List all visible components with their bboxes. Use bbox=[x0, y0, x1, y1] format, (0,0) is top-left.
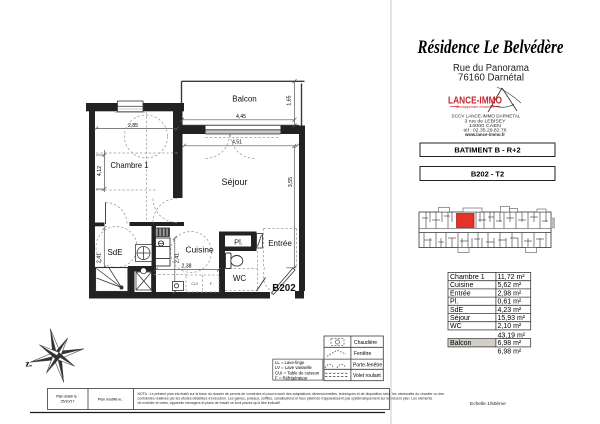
svg-text:Volet roulant: Volet roulant bbox=[353, 373, 381, 379]
svg-text:WC: WC bbox=[233, 274, 247, 283]
svg-text:Chaudière: Chaudière bbox=[354, 340, 377, 346]
svg-text:Chambre 1: Chambre 1 bbox=[111, 161, 149, 170]
svg-text:z.: z. bbox=[26, 360, 33, 370]
svg-text:CUI: CUI bbox=[191, 282, 197, 286]
svg-text:F = Réfrigérateur: F = Réfrigérateur bbox=[275, 375, 308, 380]
svg-text:Balcon: Balcon bbox=[232, 95, 256, 104]
svg-text:Plan établi le :: Plan établi le : bbox=[56, 395, 79, 399]
svg-text:WC: WC bbox=[450, 323, 462, 330]
svg-text:1,65: 1,65 bbox=[287, 95, 293, 105]
svg-text:3,55: 3,55 bbox=[288, 177, 294, 187]
svg-text:2,85: 2,85 bbox=[128, 123, 138, 129]
svg-text:SdE: SdE bbox=[450, 307, 464, 314]
svg-text:Balcon: Balcon bbox=[450, 340, 472, 347]
svg-text:6,98 m²: 6,98 m² bbox=[498, 349, 522, 356]
svg-text:Pl.: Pl. bbox=[450, 299, 458, 306]
svg-text:Pl.: Pl. bbox=[234, 238, 243, 247]
svg-text:4,51: 4,51 bbox=[232, 140, 242, 146]
svg-text:BATIMENT B - R+2: BATIMENT B - R+2 bbox=[454, 145, 520, 154]
svg-text:Résidence Le Belvédère: Résidence Le Belvédère bbox=[417, 37, 564, 58]
svg-text:Séjour: Séjour bbox=[221, 177, 247, 187]
svg-text:2,98 m²: 2,98 m² bbox=[498, 290, 522, 297]
svg-text:NOTA : Le présent plan est éta: NOTA : Le présent plan est établi sur la… bbox=[138, 392, 445, 396]
svg-text:15,93 m²: 15,93 m² bbox=[498, 315, 526, 322]
svg-text:Porte-fenêtre: Porte-fenêtre bbox=[353, 362, 382, 368]
svg-text:6,98 m²: 6,98 m² bbox=[498, 340, 522, 347]
svg-text:Fenêtre: Fenêtre bbox=[354, 351, 371, 357]
svg-text:B202 - T2: B202 - T2 bbox=[471, 169, 504, 178]
svg-text:25/10/17: 25/10/17 bbox=[61, 400, 75, 404]
svg-text:Entrée: Entrée bbox=[268, 239, 292, 248]
svg-text:2,41: 2,41 bbox=[175, 253, 181, 263]
svg-text:de mobilier et cotes, appareil: de mobilier et cotes, appareils ménagers… bbox=[138, 401, 281, 405]
svg-text:Plan modifié le :: Plan modifié le : bbox=[98, 398, 124, 402]
svg-text:Echelle 1/50ème: Echelle 1/50ème bbox=[470, 401, 506, 407]
svg-text:contraintes relatives par les: contraintes relatives par les études dét… bbox=[138, 396, 433, 400]
svg-text:4,12: 4,12 bbox=[97, 166, 103, 176]
svg-text:0,61 m²: 0,61 m² bbox=[498, 299, 522, 306]
svg-text:4,45: 4,45 bbox=[236, 114, 246, 120]
svg-text:2,38: 2,38 bbox=[181, 264, 191, 270]
svg-text:11,72 m²: 11,72 m² bbox=[498, 274, 526, 281]
svg-text:Cuisine: Cuisine bbox=[185, 245, 214, 255]
svg-text:B202: B202 bbox=[272, 283, 296, 294]
svg-text:Séjour: Séjour bbox=[450, 315, 471, 322]
svg-text:SdE: SdE bbox=[107, 248, 122, 257]
svg-text:développement immobilier: développement immobilier bbox=[456, 105, 495, 109]
svg-text:Cuisine: Cuisine bbox=[450, 282, 473, 289]
svg-text:2,41: 2,41 bbox=[96, 253, 102, 263]
svg-text:76160 Darnétal: 76160 Darnétal bbox=[458, 73, 524, 84]
svg-text:www.lance-immo.fr: www.lance-immo.fr bbox=[464, 132, 505, 137]
svg-text:Entrée: Entrée bbox=[450, 290, 471, 297]
svg-text:5,62 m²: 5,62 m² bbox=[498, 282, 522, 289]
svg-text:4,23 m²: 4,23 m² bbox=[498, 307, 522, 314]
svg-text:2,10 m²: 2,10 m² bbox=[498, 323, 522, 330]
svg-text:Chambre 1: Chambre 1 bbox=[450, 274, 485, 281]
